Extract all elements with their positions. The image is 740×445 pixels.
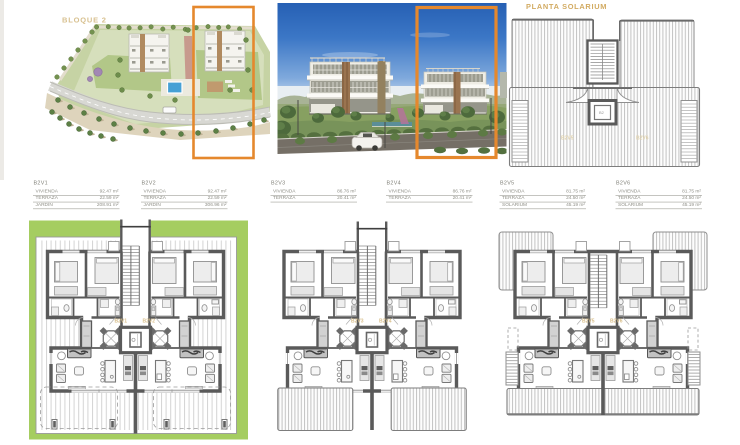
svg-text:TERRAZA: TERRAZA <box>144 195 167 201</box>
svg-text:B2V3: B2V3 <box>351 319 364 325</box>
svg-text:B2V6: B2V6 <box>616 180 630 186</box>
svg-text:86.76 m²: 86.76 m² <box>453 188 472 194</box>
svg-text:45.19 m²: 45.19 m² <box>682 202 701 208</box>
svg-text:VIVIENDA: VIVIENDA <box>389 188 412 194</box>
svg-text:92.47 m²: 92.47 m² <box>100 188 119 194</box>
svg-text:B2V1: B2V1 <box>34 180 48 186</box>
svg-text:208.91 m²: 208.91 m² <box>97 202 119 208</box>
svg-text:92.47 m²: 92.47 m² <box>208 188 227 194</box>
svg-text:20.41 m²: 20.41 m² <box>337 195 356 201</box>
svg-text:306.96 m²: 306.96 m² <box>205 202 227 208</box>
svg-text:22.59 m²: 22.59 m² <box>100 195 119 201</box>
svg-text:B2V6: B2V6 <box>610 319 623 325</box>
svg-text:TERRAZA: TERRAZA <box>618 195 641 201</box>
svg-text:B2V4: B2V4 <box>379 319 392 325</box>
svg-text:B2V1: B2V1 <box>115 319 128 325</box>
svg-text:B2V5: B2V5 <box>582 319 595 325</box>
svg-text:VIVIENDA: VIVIENDA <box>618 188 641 194</box>
svg-text:B2V2: B2V2 <box>143 319 156 325</box>
svg-text:B2: B2 <box>599 110 605 115</box>
svg-text:TERRAZA: TERRAZA <box>502 195 525 201</box>
svg-text:VIVIENDA: VIVIENDA <box>273 188 296 194</box>
svg-text:B2V5: B2V5 <box>561 136 574 142</box>
svg-text:45.19 m²: 45.19 m² <box>566 202 585 208</box>
svg-text:VIVIENDA: VIVIENDA <box>144 188 167 194</box>
svg-text:24.50 m²: 24.50 m² <box>566 195 585 201</box>
svg-text:24.50 m²: 24.50 m² <box>682 195 701 201</box>
svg-text:JARDÍN: JARDÍN <box>36 201 54 208</box>
svg-text:B2V2: B2V2 <box>142 180 156 186</box>
svg-text:JARDÍN: JARDÍN <box>144 201 162 208</box>
svg-text:SOLARIUM: SOLARIUM <box>502 202 527 208</box>
svg-text:B2V3: B2V3 <box>271 180 285 186</box>
svg-text:20.41 m²: 20.41 m² <box>453 195 472 201</box>
svg-text:81.75 m²: 81.75 m² <box>682 188 701 194</box>
svg-text:TERRAZA: TERRAZA <box>36 195 59 201</box>
svg-text:86.76 m²: 86.76 m² <box>337 188 356 194</box>
svg-text:PLANTA SOLARIUM: PLANTA SOLARIUM <box>526 2 607 11</box>
svg-text:VIVIENDA: VIVIENDA <box>502 188 525 194</box>
svg-text:B2V5: B2V5 <box>500 180 514 186</box>
svg-text:BLOQUE 2: BLOQUE 2 <box>62 16 107 25</box>
svg-text:22.59 m²: 22.59 m² <box>208 195 227 201</box>
svg-text:B2V4: B2V4 <box>387 180 401 186</box>
svg-text:SOLARIUM: SOLARIUM <box>618 202 643 208</box>
svg-text:VIVIENDA: VIVIENDA <box>36 188 59 194</box>
svg-text:TERRAZA: TERRAZA <box>389 195 412 201</box>
svg-text:81.75 m²: 81.75 m² <box>566 188 585 194</box>
svg-text:TERRAZA: TERRAZA <box>273 195 296 201</box>
svg-text:B2V6: B2V6 <box>636 136 649 142</box>
